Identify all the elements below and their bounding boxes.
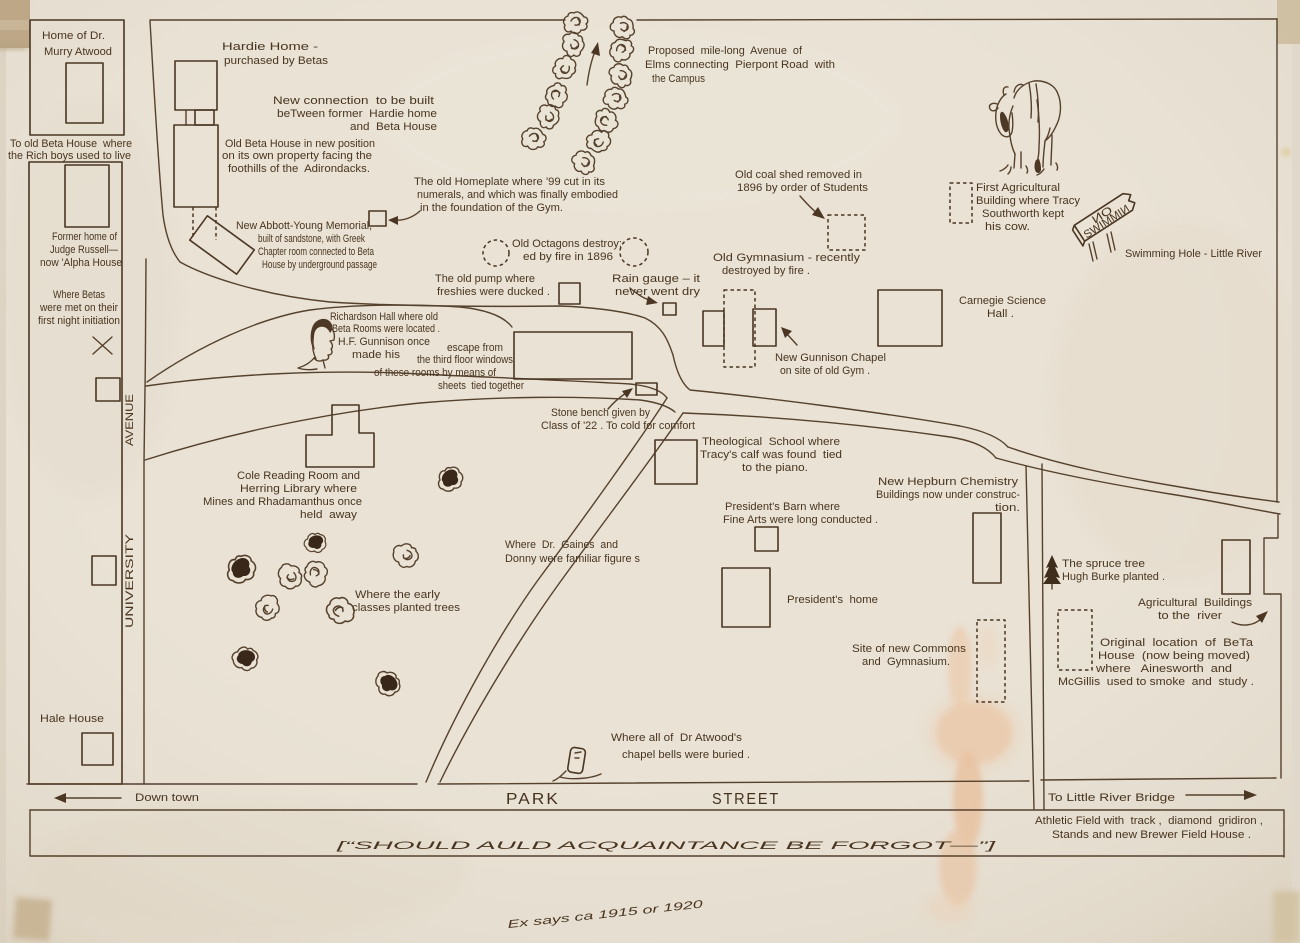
svg-text:H.F. Gunnison once: H.F. Gunnison once [338,336,430,348]
svg-text:purchased by Betas: purchased by Betas [224,55,329,67]
svg-text:Old Gymnasium - recently: Old Gymnasium - recently [713,252,861,264]
svg-text:to the piano.: to the piano. [742,462,808,474]
svg-text:and Beta House: and Beta House [350,121,437,133]
svg-text:President's Barn where: President's Barn where [725,501,840,513]
svg-text:Where the early: Where the early [355,589,441,601]
svg-text:Class of '22 . To cold for com: Class of '22 . To cold for comfort [541,420,695,432]
svg-text:held away: held away [300,509,358,521]
svg-text:Elms connecting Pierpont Road: Elms connecting Pierpont Road with [645,59,835,71]
svg-text:Beta Rooms were located .: Beta Rooms were located . [332,323,440,335]
svg-text:never went dry: never went dry [615,286,701,298]
svg-text:The old Homeplate where '99 cu: The old Homeplate where '99 cut in its [414,176,605,188]
svg-text:The spruce tree: The spruce tree [1062,558,1145,570]
svg-text:New Abbott-Young Memorial,: New Abbott-Young Memorial, [236,220,372,232]
svg-text:Old Beta House in new position: Old Beta House in new position [225,138,375,150]
svg-text:House (now being moved): House (now being moved) [1098,650,1250,662]
svg-text:first night initiation: first night initiation [38,315,120,327]
svg-text:Hall .: Hall . [987,308,1014,320]
svg-text:Murry Atwood: Murry Atwood [44,46,112,58]
svg-text:Theological School where: Theological School where [702,436,840,448]
svg-text:Proposed mile-long Avenue o: Proposed mile-long Avenue of [648,45,803,57]
svg-text:Richardson Hall where old: Richardson Hall where old [330,311,438,323]
svg-text:escape from: escape from [447,342,503,354]
svg-text:Herring Library where: Herring Library where [240,483,357,495]
svg-text:classes planted trees: classes planted trees [352,602,461,614]
svg-text:The old pump where: The old pump where [435,273,535,285]
svg-text:now 'Alpha House: now 'Alpha House [40,257,122,269]
svg-text:Original location of BeTa: Original location of BeTa [1100,637,1254,649]
svg-text:Rain gauge – it: Rain gauge – it [612,273,700,285]
svg-text:the Campus: the Campus [652,73,705,85]
svg-text:UNIVERSITY: UNIVERSITY [124,533,136,628]
svg-text:House by underground passage: House by underground passage [262,259,377,271]
svg-text:STREET: STREET [712,791,780,808]
svg-text:the third floor windows: the third floor windows [417,354,513,366]
svg-text:Athletic Field with track ,: Athletic Field with track , diamond grid… [1035,815,1263,827]
svg-text:Southworth kept: Southworth kept [982,208,1064,220]
svg-text:where Ainesworth and: where Ainesworth and [1095,663,1232,675]
svg-text:Mines and Rhadamanthus once: Mines and Rhadamanthus once [203,496,362,508]
svg-text:Where all of Dr Atwood's: Where all of Dr Atwood's [611,732,743,744]
svg-text:of these rooms by means of: of these rooms by means of [374,367,497,379]
svg-text:Carnegie Science: Carnegie Science [959,295,1046,307]
svg-text:on its own property facing the: on its own property facing the [222,150,372,162]
svg-text:destroyed by fire .: destroyed by fire . [722,265,810,277]
svg-text:To Little River Bridge: To Little River Bridge [1048,792,1175,804]
svg-text:Cole Reading Room and: Cole Reading Room and [237,470,360,482]
svg-text:New Hepburn Chemistry: New Hepburn Chemistry [878,476,1019,488]
svg-text:made his: made his [352,349,401,361]
svg-text:President's home: President's home [787,594,878,606]
svg-text:1896 by order of Students: 1896 by order of Students [737,182,869,194]
svg-text:PARK: PARK [506,791,560,808]
svg-text:Old Octagons destroy:: Old Octagons destroy: [512,238,622,250]
svg-text:Home of Dr.: Home of Dr. [42,30,105,42]
svg-text:Stone bench given by: Stone bench given by [551,407,650,419]
svg-text:built of sandstone, with Greek: built of sandstone, with Greek [258,233,365,245]
svg-text:beTween former Hardie home: beTween former Hardie home [277,108,437,120]
svg-text:Judge Russell—: Judge Russell— [50,244,118,256]
svg-text:Stands and new Brewer Field Ho: Stands and new Brewer Field House . [1052,829,1251,841]
svg-text:New Gunnison Chapel: New Gunnison Chapel [775,352,886,364]
svg-text:Where Dr. Gaines and: Where Dr. Gaines and [505,539,618,551]
svg-text:Former home of: Former home of [52,231,118,243]
svg-text:ed by fire in 1896: ed by fire in 1896 [523,251,613,263]
svg-text:Donny were familiar figure s: Donny were familiar figure s [505,553,640,565]
svg-text:on site of old Gym .: on site of old Gym . [780,365,870,377]
svg-text:Agricultural Buildings: Agricultural Buildings [1138,597,1253,609]
svg-text:Chapter room connected to Beta: Chapter room connected to Beta [258,246,375,258]
svg-text:Buildings now under construc-: Buildings now under construc- [876,489,1020,501]
svg-text:Down town: Down town [135,792,199,804]
svg-text:Hugh Burke planted .: Hugh Burke planted . [1062,571,1165,583]
svg-text:his cow.: his cow. [985,221,1030,233]
svg-text:Building where Tracy: Building where Tracy [976,195,1081,207]
svg-text:Hale House: Hale House [40,713,104,725]
svg-text:in the foundation of the Gym.: in the foundation of the Gym. [420,202,563,214]
svg-text:McGillis used to smoke and: McGillis used to smoke and study . [1058,676,1254,688]
svg-text:foothills of the Adirondacks.: foothills of the Adirondacks. [228,163,370,175]
svg-text:Site of new Commons: Site of new Commons [852,643,967,655]
svg-text:were met on their: were met on their [39,302,118,314]
svg-text:the Rich boys used to live: the Rich boys used to live [8,150,131,162]
svg-text:To old Beta House where: To old Beta House where [10,138,132,150]
svg-text:Hardie Home -: Hardie Home - [222,41,318,53]
svg-text:[“SHOULD AULD ACQUAINTANCE BE: [“SHOULD AULD ACQUAINTANCE BE FORGOT—”] [334,840,997,852]
svg-text:Old coal shed removed in: Old coal shed removed in [735,169,862,181]
svg-text:numerals, and which was finall: numerals, and which was finally embodied [417,189,618,201]
svg-text:sheets tied together: sheets tied together [438,380,524,392]
svg-text:chapel bells were buried .: chapel bells were buried . [622,749,750,761]
svg-text:First Agricultural: First Agricultural [976,182,1060,194]
svg-text:Where Betas: Where Betas [53,289,105,301]
svg-text:AVENUE: AVENUE [124,394,136,446]
svg-text:to the river: to the river [1158,610,1222,622]
svg-text:and Gymnasium.: and Gymnasium. [862,656,950,668]
svg-text:Swimming Hole - Little River: Swimming Hole - Little River [1125,248,1262,260]
svg-text:Fine Arts were long conducted: Fine Arts were long conducted . [723,514,878,526]
svg-text:Tracy's calf was found tied: Tracy's calf was found tied [700,449,842,461]
svg-text:freshies were ducked .: freshies were ducked . [437,286,550,298]
svg-text:New connection to be built: New connection to be built [273,95,434,107]
